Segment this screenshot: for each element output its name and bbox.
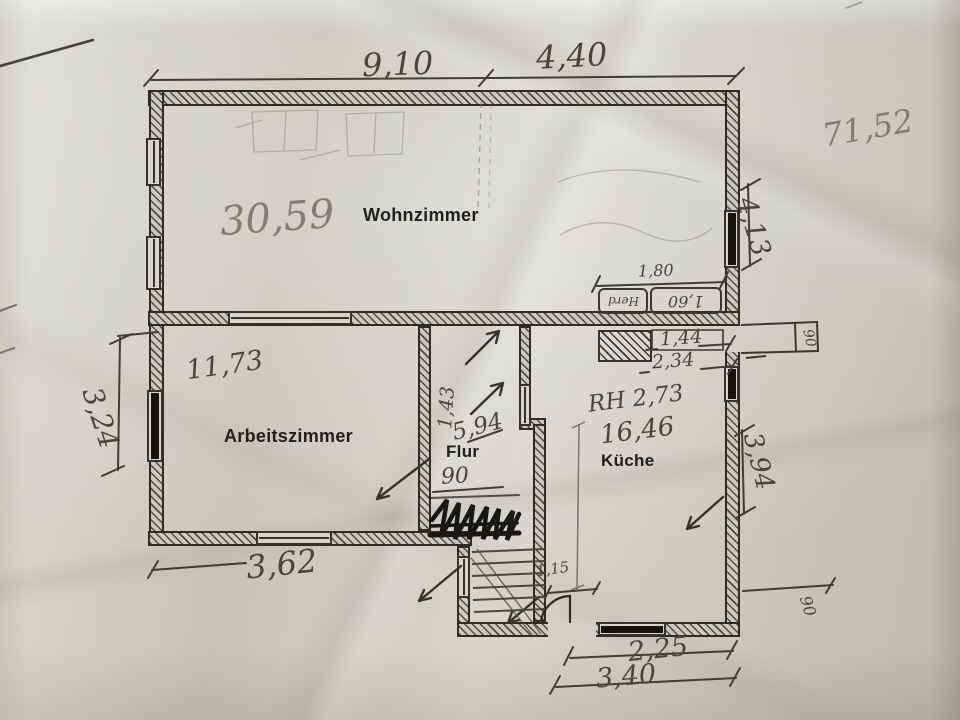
area-arbeitszimmer: 11,73 — [184, 347, 264, 384]
dashed-centerline — [478, 102, 491, 214]
room-label-flur: Flur — [446, 443, 479, 460]
kueche-interior-dim — [571, 422, 585, 592]
dim-bottom-outer: 3,40 — [595, 660, 657, 692]
door-bottom-width: 90 — [797, 594, 819, 618]
window-entrance — [457, 556, 470, 598]
sink-symbol — [598, 330, 652, 362]
window-left-1 — [146, 138, 161, 186]
dim-entry-door: 1,15 — [535, 560, 570, 580]
sink-length-label: 1,60 — [668, 293, 704, 309]
dim-counter-a: 1,44 — [659, 328, 703, 350]
wall-kueche-left — [533, 424, 546, 622]
door-opening-bottom — [548, 620, 596, 639]
window-kueche-right — [724, 366, 739, 402]
window-arbeitszimmer-left — [147, 390, 163, 462]
room-label-kueche: Küche — [601, 452, 654, 469]
door-right-width: 90 — [800, 328, 817, 348]
dim-top-right: 4,40 — [535, 38, 608, 74]
area-kueche: 16,46 — [599, 414, 676, 449]
dim-bottom-left: 3,62 — [245, 544, 319, 583]
floor-plan-photo: Herd 1,60 — [0, 0, 960, 720]
dim-counter-top: 1,80 — [638, 262, 674, 279]
window-flur-kueche — [519, 384, 531, 426]
stove-label: Herd — [608, 295, 639, 307]
window-left-2 — [146, 236, 161, 290]
sink-box: 1,60 — [650, 287, 722, 314]
dim-left: 3,24 — [77, 384, 123, 452]
wall-right — [725, 90, 740, 637]
area-wohnzimmer: 30,59 — [219, 194, 336, 242]
dim-counter-b: 2,34 — [651, 351, 695, 373]
door-opening-right — [723, 326, 742, 352]
total-area: 71,52 — [820, 104, 916, 151]
room-label-arbeitszimmer: Arbeitszimmer — [224, 427, 353, 445]
wall-arbeitszimmer-flur — [418, 326, 431, 531]
dim-right-lower: 3,94 — [739, 430, 778, 492]
wall-top — [148, 90, 740, 106]
builtin-middle-wall — [228, 311, 352, 325]
area-flur: 5,94 — [450, 410, 505, 445]
room-label-wohnzimmer: Wohnzimmer — [363, 206, 479, 224]
flur-door-width: 90 — [440, 465, 469, 488]
stove-box: Herd — [598, 288, 648, 314]
dim-top-left: 9,10 — [361, 47, 433, 81]
